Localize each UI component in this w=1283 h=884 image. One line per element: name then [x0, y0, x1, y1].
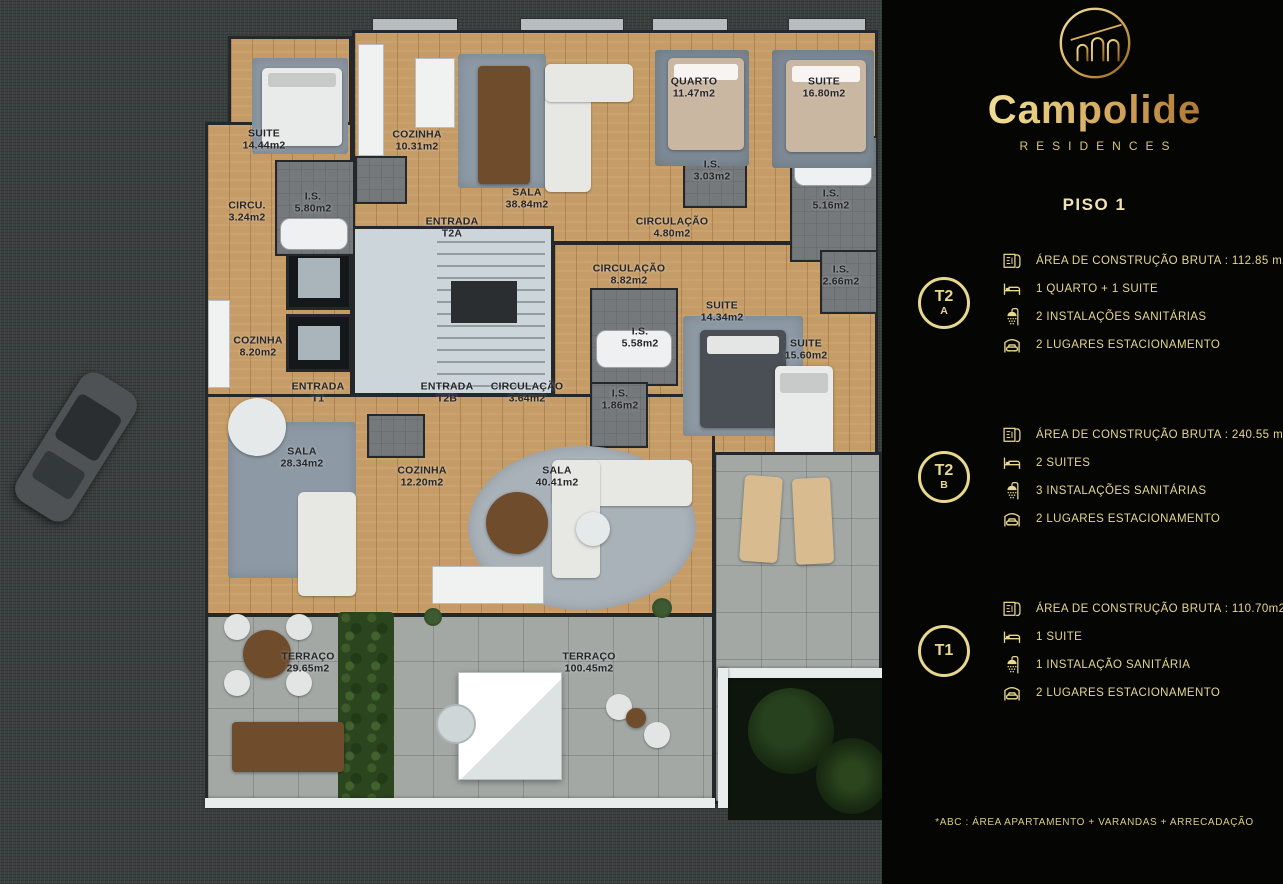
- spec-row: 2 SUITES: [1002, 449, 1283, 477]
- spec-text: 2 LUGARES ESTACIONAMENTO: [1036, 687, 1220, 699]
- bed-icon: [1002, 453, 1022, 473]
- spec-row: ÁREA DE CONSTRUÇÃO BRUTA : 110.70m2*: [1002, 595, 1283, 623]
- spec-text: 3 INSTALAÇÕES SANITÁRIAS: [1036, 485, 1206, 497]
- room-name: CIRCU.: [228, 200, 265, 212]
- unit-spec-list: ÁREA DE CONSTRUÇÃO BRUTA : 110.70m2* 1 S…: [1002, 595, 1283, 707]
- room-label: QUARTO 11.47m2: [671, 76, 718, 101]
- room-label: SALA 38.84m2: [506, 187, 549, 212]
- room-label: COZINHA 10.31m2: [392, 129, 441, 154]
- unit-spec-blocks: T2 A ÁREA DE CONSTRUÇÃO BRUTA : 112.85 m…: [894, 247, 1283, 707]
- room-name: QUARTO: [671, 76, 718, 88]
- room-name: ENTRADA: [426, 216, 479, 228]
- room-label: CIRCULAÇÃO 8.82m2: [593, 263, 666, 288]
- room-name: ENTRADA: [292, 381, 345, 393]
- unit-badge-sublabel: B: [940, 480, 948, 491]
- room-name: SUITE: [785, 338, 828, 350]
- room-label: CIRCULAÇÃO 4.80m2: [636, 216, 709, 241]
- room-name: I.S.: [694, 159, 731, 171]
- unit-badge-label: T2: [935, 289, 954, 305]
- room-label: SALA 28.34m2: [281, 446, 324, 471]
- shower-icon: [1002, 655, 1022, 675]
- garage-car-icon: [1002, 509, 1022, 529]
- floorplan-document-icon: [1002, 251, 1022, 271]
- room-area: 14.34m2: [701, 312, 744, 324]
- room-area: 14.44m2: [243, 140, 286, 152]
- room-area: 3.03m2: [694, 171, 731, 183]
- spec-row: ÁREA DE CONSTRUÇÃO BRUTA : 240.55 m2*: [1002, 421, 1283, 449]
- unit-badge-sublabel: A: [940, 306, 948, 317]
- room-label: ENTRADA T2B: [421, 381, 474, 406]
- room-label: I.S. 1.86m2: [602, 388, 639, 413]
- room-name: CIRCULAÇÃO: [636, 216, 709, 228]
- room-name: SUITE: [701, 300, 744, 312]
- spec-text: ÁREA DE CONSTRUÇÃO BRUTA : 112.85 m2*: [1036, 255, 1283, 267]
- marketing-floorplan-sheet: SUITE 14.44m2 COZINHA 10.31m2 SALA 38.84…: [0, 0, 1283, 884]
- room-name: CIRCULAÇÃO: [491, 381, 564, 393]
- room-area: 38.84m2: [506, 199, 549, 211]
- footnote: *ABC : ÁREA APARTAMENTO + VARANDAS + ARR…: [894, 817, 1283, 828]
- spec-text: 2 INSTALAÇÕES SANITÁRIAS: [1036, 311, 1206, 323]
- room-name: I.S.: [602, 388, 639, 400]
- room-label: COZINHA 8.20m2: [233, 335, 282, 360]
- room-label: SUITE 14.44m2: [243, 128, 286, 153]
- room-area: 2.66m2: [823, 276, 860, 288]
- room-area: 28.34m2: [281, 458, 324, 470]
- room-label: ENTRADA T2A: [426, 216, 479, 241]
- unit-badge-label: T2: [935, 463, 954, 479]
- room-name: I.S.: [813, 188, 850, 200]
- spec-text: ÁREA DE CONSTRUÇÃO BRUTA : 240.55 m2*: [1036, 429, 1283, 441]
- spec-row: 2 LUGARES ESTACIONAMENTO: [1002, 331, 1283, 359]
- spec-text: 2 SUITES: [1036, 457, 1090, 469]
- floorplan-document-icon: [1002, 425, 1022, 445]
- room-area: 16.80m2: [803, 88, 846, 100]
- floorplan-scene: SUITE 14.44m2 COZINHA 10.31m2 SALA 38.84…: [0, 0, 882, 884]
- room-area: T2B: [421, 393, 474, 405]
- room-area: 3.24m2: [228, 212, 265, 224]
- spec-text: 1 SUITE: [1036, 631, 1082, 643]
- spec-row: ÁREA DE CONSTRUÇÃO BRUTA : 112.85 m2*: [1002, 247, 1283, 275]
- unit-spec-block: T1 ÁREA DE CONSTRUÇÃO BRUTA : 110.70m2* …: [894, 595, 1283, 707]
- room-name: SUITE: [243, 128, 286, 140]
- room-area: 11.47m2: [671, 88, 718, 100]
- room-label: I.S. 3.03m2: [694, 159, 731, 184]
- room-name: I.S.: [823, 264, 860, 276]
- spec-row: 1 INSTALAÇÃO SANITÁRIA: [1002, 651, 1283, 679]
- room-label: SALA 40.41m2: [536, 465, 579, 490]
- room-area: 12.20m2: [397, 477, 446, 489]
- room-area: 29.65m2: [281, 663, 334, 675]
- bed-icon: [1002, 279, 1022, 299]
- room-area: 5.80m2: [295, 203, 332, 215]
- room-labels-layer: SUITE 14.44m2 COZINHA 10.31m2 SALA 38.84…: [0, 0, 882, 884]
- room-label: COZINHA 12.20m2: [397, 465, 446, 490]
- spec-text: 1 INSTALAÇÃO SANITÁRIA: [1036, 659, 1190, 671]
- room-area: 8.82m2: [593, 275, 666, 287]
- room-label: CIRCU. 3.24m2: [228, 200, 265, 225]
- room-name: I.S.: [295, 191, 332, 203]
- room-name: SUITE: [803, 76, 846, 88]
- unit-badge-label: T1: [935, 643, 954, 659]
- info-panel: Campolide RESIDENCES PISO 1 T2 A ÁREA DE…: [882, 0, 1283, 884]
- garage-car-icon: [1002, 683, 1022, 703]
- room-label: TERRAÇO 29.65m2: [281, 651, 334, 676]
- room-label: SUITE 14.34m2: [701, 300, 744, 325]
- room-name: COZINHA: [392, 129, 441, 141]
- spec-text: 1 QUARTO + 1 SUITE: [1036, 283, 1158, 295]
- unit-spec-list: ÁREA DE CONSTRUÇÃO BRUTA : 112.85 m2* 1 …: [1002, 247, 1283, 359]
- room-area: 15.60m2: [785, 350, 828, 362]
- room-name: COZINHA: [397, 465, 446, 477]
- room-area: T2A: [426, 228, 479, 240]
- spec-text: 2 LUGARES ESTACIONAMENTO: [1036, 339, 1220, 351]
- brand-logo: Campolide RESIDENCES: [894, 0, 1283, 153]
- floorplan-document-icon: [1002, 599, 1022, 619]
- room-area: 5.58m2: [622, 338, 659, 350]
- room-name: I.S.: [622, 326, 659, 338]
- spec-text: 2 LUGARES ESTACIONAMENTO: [1036, 513, 1220, 525]
- garage-car-icon: [1002, 335, 1022, 355]
- unit-badge: T1: [918, 625, 970, 677]
- room-label: I.S. 5.80m2: [295, 191, 332, 216]
- brand-subtitle: RESIDENCES: [894, 139, 1283, 153]
- room-area: 40.41m2: [536, 477, 579, 489]
- room-label: SUITE 16.80m2: [803, 76, 846, 101]
- floor-title: PISO 1: [894, 195, 1283, 215]
- spec-row: 2 LUGARES ESTACIONAMENTO: [1002, 679, 1283, 707]
- room-label: ENTRADA T1: [292, 381, 345, 406]
- spec-row: 2 LUGARES ESTACIONAMENTO: [1002, 505, 1283, 533]
- room-name: CIRCULAÇÃO: [593, 263, 666, 275]
- room-name: SALA: [281, 446, 324, 458]
- room-name: SALA: [536, 465, 579, 477]
- bed-icon: [1002, 627, 1022, 647]
- spec-row: 3 INSTALAÇÕES SANITÁRIAS: [1002, 477, 1283, 505]
- room-area: 100.45m2: [562, 663, 615, 675]
- unit-spec-block: T2 A ÁREA DE CONSTRUÇÃO BRUTA : 112.85 m…: [894, 247, 1283, 359]
- room-label: SUITE 15.60m2: [785, 338, 828, 363]
- room-name: TERRAÇO: [281, 651, 334, 663]
- spec-row: 2 INSTALAÇÕES SANITÁRIAS: [1002, 303, 1283, 331]
- unit-spec-block: T2 B ÁREA DE CONSTRUÇÃO BRUTA : 240.55 m…: [894, 421, 1283, 533]
- room-area: 3.64m2: [491, 393, 564, 405]
- room-area: 5.16m2: [813, 200, 850, 212]
- room-area: 8.20m2: [233, 347, 282, 359]
- unit-badge: T2 A: [918, 277, 970, 329]
- room-area: 10.31m2: [392, 141, 441, 153]
- spec-text: ÁREA DE CONSTRUÇÃO BRUTA : 110.70m2*: [1036, 603, 1283, 615]
- spec-row: 1 QUARTO + 1 SUITE: [1002, 275, 1283, 303]
- room-area: 4.80m2: [636, 228, 709, 240]
- room-label: I.S. 5.16m2: [813, 188, 850, 213]
- unit-spec-list: ÁREA DE CONSTRUÇÃO BRUTA : 240.55 m2* 2 …: [1002, 421, 1283, 533]
- shower-icon: [1002, 307, 1022, 327]
- room-label: I.S. 2.66m2: [823, 264, 860, 289]
- room-label: CIRCULAÇÃO 3.64m2: [491, 381, 564, 406]
- shower-icon: [1002, 481, 1022, 501]
- aqueduct-arches-icon: [1057, 5, 1133, 81]
- unit-badge: T2 B: [918, 451, 970, 503]
- room-area: T1: [292, 393, 345, 405]
- room-area: 1.86m2: [602, 400, 639, 412]
- room-label: I.S. 5.58m2: [622, 326, 659, 351]
- brand-name: Campolide: [894, 88, 1283, 133]
- room-label: TERRAÇO 100.45m2: [562, 651, 615, 676]
- room-name: ENTRADA: [421, 381, 474, 393]
- room-name: COZINHA: [233, 335, 282, 347]
- room-name: TERRAÇO: [562, 651, 615, 663]
- spec-row: 1 SUITE: [1002, 623, 1283, 651]
- room-name: SALA: [506, 187, 549, 199]
